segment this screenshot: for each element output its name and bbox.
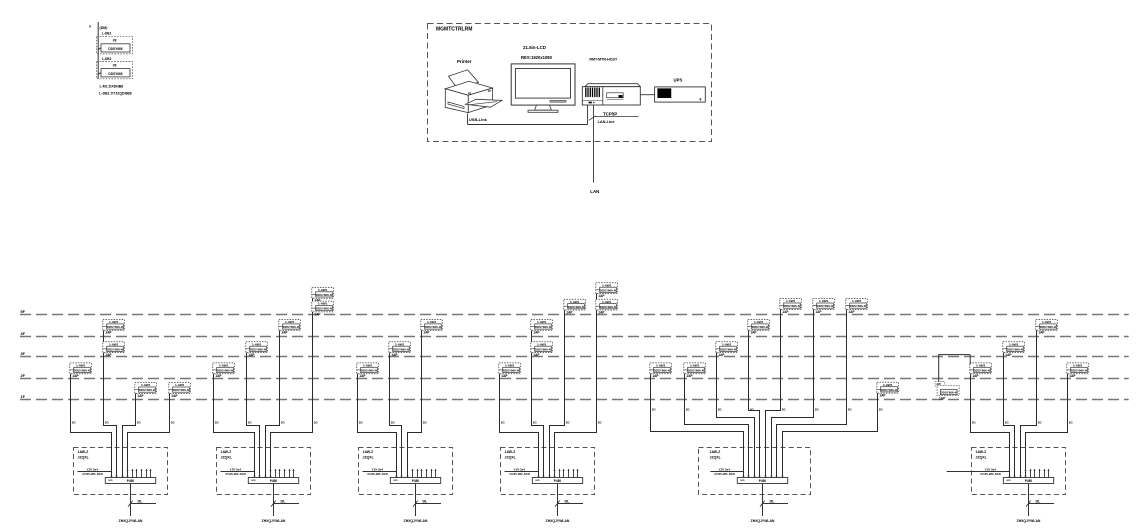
svg-text:2G: 2G (750, 407, 755, 411)
svg-text:1-AW1: 1-AW1 (219, 364, 229, 368)
svg-text:P480: P480 (270, 479, 278, 483)
svg-text:Printer: Printer (457, 59, 472, 64)
svg-text:1AP: 1AP (848, 310, 855, 314)
svg-text:DDSY666-4l: DDSY666-4l (107, 325, 123, 329)
svg-text:DDSY666-4l: DDSY666-4l (217, 369, 233, 373)
svg-text:1AW-Z: 1AW-Z (710, 450, 722, 454)
svg-text:DDSY666-4l: DDSY666-4l (1040, 325, 1056, 329)
svg-text:1-AW1: 1-AW1 (570, 300, 580, 304)
svg-text:DDSY666-4l: DDSY666-4l (74, 369, 90, 373)
svg-text:DDSY666-4l: DDSY666-4l (600, 305, 616, 309)
svg-text:1AW-Z: 1AW-Z (78, 450, 90, 454)
svg-text:JZQXL: JZQXL (221, 456, 233, 460)
svg-text:1AW-Z: 1AW-Z (505, 450, 517, 454)
svg-text:2G: 2G (566, 420, 571, 424)
svg-text:3F: 3F (21, 352, 26, 356)
svg-text:21.5in-LCD: 21.5in-LCD (523, 45, 546, 50)
svg-text:DDSY666-4l: DDSY666-4l (654, 369, 670, 373)
svg-text:DDSY666-4l: DDSY666-4l (173, 388, 189, 392)
svg-text:LAN-Line: LAN-Line (598, 120, 615, 124)
svg-text:2G: 2G (598, 420, 603, 424)
svg-text:1-AW1: 1-AW1 (252, 342, 262, 346)
svg-text:DDSY666-4l: DDSY666-4l (881, 388, 897, 392)
svg-text:8: 8 (700, 98, 702, 102)
svg-text:RMT-MTR-HOST: RMT-MTR-HOST (589, 57, 618, 61)
svg-text:1AP: 1AP (391, 353, 398, 357)
svg-text:JZQXL: JZQXL (976, 456, 988, 460)
svg-text:2G: 2G (652, 407, 657, 411)
svg-text:1-AW1: 1-AW1 (318, 288, 328, 292)
svg-text:ZHXQJYWLAN: ZHXQJYWLAN (751, 519, 775, 523)
svg-text:1AP: 1AP (359, 374, 366, 378)
svg-text:DL: DL (565, 499, 571, 503)
svg-text:1AP: 1AP (686, 374, 693, 378)
svg-text:DDSY666-4l: DDSY666-4l (503, 369, 519, 373)
svg-text:DDSY666-4l: DDSY666-4l (784, 304, 800, 308)
svg-text:FC25-WC-SC8: FC25-WC-SC8 (83, 472, 103, 476)
svg-text:DDSY666-4l: DDSY666-4l (568, 305, 584, 309)
svg-text:2G: 2G (972, 420, 977, 424)
svg-text:1-AW1: 1-AW1 (76, 364, 86, 368)
svg-text:DDSY666-4l: DDSY666-4l (600, 288, 616, 292)
svg-text:1-AW1: 1-AW1 (537, 320, 547, 324)
svg-text:1-AW1: 1-AW1 (537, 342, 547, 346)
svg-text:1AP: 1AP (314, 312, 321, 316)
svg-text:1AP: 1AP (281, 331, 288, 335)
svg-text:1-AW1: 1-AW1 (175, 383, 185, 387)
svg-text:DDSY666-4l: DDSY666-4l (283, 325, 299, 329)
svg-text:#8: #8 (113, 39, 117, 43)
svg-text:1-AW1: 1-AW1 (976, 364, 986, 368)
svg-text:1AP: 1AP (750, 331, 757, 335)
svg-text:1AP: 1AP (105, 353, 112, 357)
svg-text:(DM): (DM) (100, 26, 109, 30)
svg-text:DDSY666: DDSY666 (108, 72, 122, 76)
svg-text:1-AW1: 1-AW1 (656, 364, 666, 368)
svg-text:1AP: 1AP (1005, 353, 1012, 357)
svg-text:1-AW1: 1-AW1 (852, 299, 862, 303)
svg-text:L-DB1: L-DB1 (102, 31, 112, 35)
svg-text:2G: 2G (171, 420, 176, 424)
svg-text:2G: 2G (359, 420, 364, 424)
svg-text:1AP: 1AP (566, 310, 573, 314)
svg-text:1AP: 1AP (248, 353, 255, 357)
svg-text:YJV-3x4: YJV-3x4 (514, 467, 526, 471)
svg-text:RES:1920x1080: RES:1920x1080 (521, 55, 553, 60)
svg-text:1AP: 1AP (533, 353, 540, 357)
svg-text:FC25-WC-SC8: FC25-WC-SC8 (226, 472, 246, 476)
svg-text:1AW-Z: 1AW-Z (221, 450, 233, 454)
svg-text:DDSY666-4l: DDSY666-4l (1071, 369, 1087, 373)
svg-text:DDSY666-4l: DDSY666-4l (720, 347, 736, 351)
svg-text:2G: 2G (105, 420, 110, 424)
svg-text:DDSY666: DDSY666 (108, 47, 122, 51)
svg-text:FC25-WC-SC8: FC25-WC-SC8 (368, 472, 388, 476)
svg-text:1AP: 1AP (72, 374, 79, 378)
svg-text:ZHXQJYWLAN: ZHXQJYWLAN (119, 519, 143, 523)
svg-text:P480: P480 (412, 479, 420, 483)
svg-text:P480: P480 (554, 479, 562, 483)
svg-text:DDSY666-4l: DDSY666-4l (316, 307, 332, 311)
svg-text:1-AW1: 1-AW1 (690, 364, 700, 368)
svg-text:1-AW1: 1-AW1 (285, 320, 295, 324)
svg-text:2F: 2F (21, 374, 26, 378)
svg-text:#8: #8 (113, 64, 117, 68)
svg-text:DDSY666-4l: DDSY666-4l (107, 347, 123, 351)
svg-text:1-AW1: 1-AW1 (754, 320, 764, 324)
svg-text:YJV-3x4: YJV-3x4 (719, 467, 731, 471)
svg-text:ZHXQJYWLAN: ZHXQJYWLAN (262, 519, 286, 523)
svg-text:2G: 2G (718, 407, 723, 411)
svg-text:FC25-WC-SC8: FC25-WC-SC8 (510, 472, 530, 476)
svg-text:DDSY666-4l: DDSY666-4l (1007, 347, 1023, 351)
svg-text:5F: 5F (21, 310, 26, 314)
svg-text:DDSY666-4l: DDSY666-4l (688, 369, 704, 373)
svg-text:DDSY666-4l: DDSY666-4l (425, 325, 441, 329)
svg-text:DDSY666-4l: DDSY666-4l (752, 325, 768, 329)
svg-text:1AP: 1AP (137, 394, 144, 398)
svg-text:DL: DL (138, 499, 144, 503)
svg-text:DL: DL (281, 499, 287, 503)
svg-text:2G: 2G (215, 420, 220, 424)
svg-text:2G: 2G (314, 420, 319, 424)
svg-text:1-AW1: 1-AW1 (109, 320, 119, 324)
svg-text:1AP: 1AP (105, 331, 112, 335)
svg-text:ZHXQJYWLAN: ZHXQJYWLAN (546, 519, 570, 523)
svg-text:1AP: 1AP (652, 374, 659, 378)
svg-text:1-AW1: 1-AW1 (363, 364, 373, 368)
svg-text:1-AW1: 1-AW1 (883, 383, 893, 387)
svg-text:1-AW1: 1-AW1 (819, 299, 829, 303)
svg-text:2G: 2G (72, 420, 77, 424)
svg-text:P480: P480 (1025, 479, 1033, 483)
svg-text:1AP: 1AP (879, 394, 886, 398)
svg-text:1AP: 1AP (1069, 374, 1076, 378)
svg-text:1AW-Z: 1AW-Z (363, 450, 375, 454)
svg-text:L-DB2: L-DB2 (102, 57, 112, 61)
svg-text:1-AW1: 1-AW1 (1009, 342, 1019, 346)
svg-text:P480: P480 (127, 479, 135, 483)
svg-text:YJV-3x4: YJV-3x4 (230, 467, 242, 471)
svg-text:UPS: UPS (674, 77, 683, 82)
svg-text:ZHXQJYWLAN: ZHXQJYWLAN (1017, 519, 1041, 523)
svg-text:2G: 2G (137, 420, 142, 424)
svg-text:USB-Link: USB-Link (469, 117, 488, 122)
svg-text:1AP: 1AP (972, 374, 979, 378)
svg-text:2G: 2G (848, 407, 853, 411)
svg-text:L-DB1:XTJZQDNB8: L-DB1:XTJZQDNB8 (99, 91, 131, 95)
svg-text:1-AW1: 1-AW1 (141, 383, 151, 387)
svg-text:2G: 2G (686, 407, 691, 411)
svg-text:DL: DL (423, 499, 429, 503)
svg-text:ZHXQJYWLAN: ZHXQJYWLAN (404, 519, 428, 523)
svg-text:DDSY666-4l: DDSY666-4l (974, 369, 990, 373)
svg-text:DDSY666-4l: DDSY666-4l (139, 388, 155, 392)
svg-text:DDSY666-4l: DDSY666-4l (535, 347, 551, 351)
svg-text:MGMTCTRLRM: MGMTCTRLRM (436, 27, 472, 33)
svg-text:2G: 2G (782, 407, 787, 411)
svg-text:1AP: 1AP (171, 394, 178, 398)
svg-text:JZQXL: JZQXL (710, 456, 722, 460)
svg-text:1-AW1: 1-AW1 (109, 342, 119, 346)
svg-text:DDSY666-4l: DDSY666-4l (393, 347, 409, 351)
svg-text:DDSY666-4l: DDSY666-4l (361, 369, 377, 373)
svg-text:2G: 2G (391, 420, 396, 424)
svg-text:1-AW1: 1-AW1 (602, 283, 612, 287)
svg-text:JZQXL: JZQXL (505, 456, 517, 460)
svg-text:1AP: 1AP (939, 397, 946, 401)
svg-text:1-AW1: 1-AW1 (395, 342, 405, 346)
svg-text:DDSY666-4l: DDSY666-4l (850, 304, 866, 308)
svg-text:DDSY666-4l: DDSY666-4l (316, 293, 332, 297)
svg-text:DL: DL (770, 499, 776, 503)
svg-text:1AP: 1AP (423, 331, 430, 335)
svg-text:1-AW1: 1-AW1 (786, 299, 796, 303)
svg-text:1-AW1: 1-AW1 (318, 302, 328, 306)
svg-text:2G: 2G (533, 420, 538, 424)
svg-text:DDSY666-4l: DDSY666-4l (250, 347, 266, 351)
svg-text:1-AW1: 1-AW1 (602, 300, 612, 304)
svg-text:2G: 2G (501, 420, 506, 424)
svg-text:1AP: 1AP (501, 374, 508, 378)
svg-text:1-AW1: 1-AW1 (1073, 364, 1083, 368)
svg-text:JZQXL: JZQXL (363, 456, 375, 460)
svg-text:YJV-3x4: YJV-3x4 (372, 467, 384, 471)
svg-text:2G: 2G (1005, 420, 1010, 424)
svg-text:LAN: LAN (590, 189, 599, 194)
svg-text:2G: 2G (879, 407, 884, 411)
svg-text:1-AW1: 1-AW1 (427, 320, 437, 324)
svg-text:1AP: 1AP (815, 310, 822, 314)
svg-text:2G: 2G (248, 420, 253, 424)
svg-text:DDSY666-4l: DDSY666-4l (941, 391, 957, 395)
svg-text:2G: 2G (281, 420, 286, 424)
svg-text:TCP/IP: TCP/IP (603, 111, 617, 116)
svg-text:YJV-3x4: YJV-3x4 (87, 467, 99, 471)
svg-text:YJV-3x4: YJV-3x4 (985, 467, 997, 471)
svg-text:1-AW1: 1-AW1 (1042, 320, 1052, 324)
svg-text:1AP: 1AP (1038, 331, 1045, 335)
svg-text:1AP: 1AP (533, 331, 540, 335)
svg-text:JZQXL: JZQXL (78, 456, 90, 460)
svg-text:1F: 1F (21, 395, 26, 399)
svg-text:P480: P480 (759, 479, 767, 483)
svg-text:2G: 2G (815, 407, 820, 411)
svg-text:2G: 2G (1038, 420, 1043, 424)
svg-text:1AP: 1AP (718, 353, 725, 357)
svg-text:1-AW1: 1-AW1 (505, 364, 515, 368)
svg-text:1-AW1: 1-AW1 (722, 342, 732, 346)
svg-text:DDSY666-4l: DDSY666-4l (535, 325, 551, 329)
svg-text:1AP: 1AP (782, 310, 789, 314)
svg-text:1AP: 1AP (215, 374, 222, 378)
svg-text:DDSY666-4l: DDSY666-4l (817, 304, 833, 308)
svg-text:1AP: 1AP (598, 310, 605, 314)
svg-text:DL: DL (1036, 499, 1042, 503)
svg-text:1AW-Z: 1AW-Z (976, 450, 988, 454)
svg-text:4F: 4F (21, 332, 26, 336)
svg-text:2G: 2G (423, 420, 428, 424)
svg-text:L-M1:DXDNB8: L-M1:DXDNB8 (100, 85, 124, 89)
svg-text:FC25-WC-SC8: FC25-WC-SC8 (715, 472, 735, 476)
svg-text:2G: 2G (1069, 420, 1074, 424)
svg-text:FC25-WC-SC8: FC25-WC-SC8 (981, 472, 1001, 476)
svg-text:1AP: 1AP (598, 294, 605, 298)
